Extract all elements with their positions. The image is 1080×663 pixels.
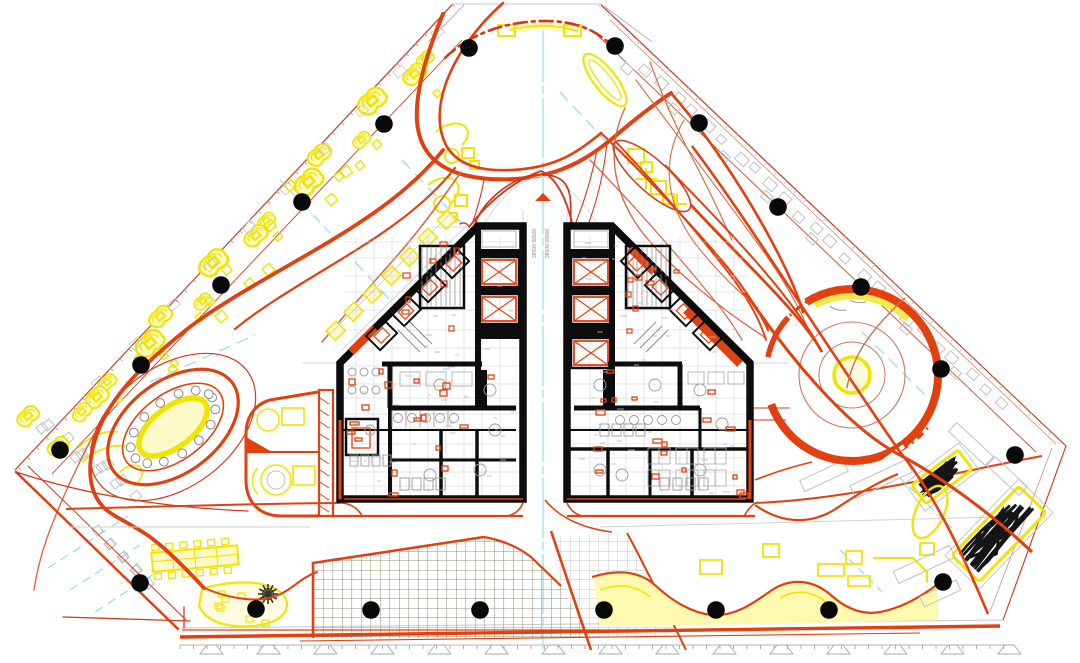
svg-text:38500 38500: 38500 38500 (532, 229, 538, 258)
svg-text:38500 38500: 38500 38500 (545, 229, 551, 258)
